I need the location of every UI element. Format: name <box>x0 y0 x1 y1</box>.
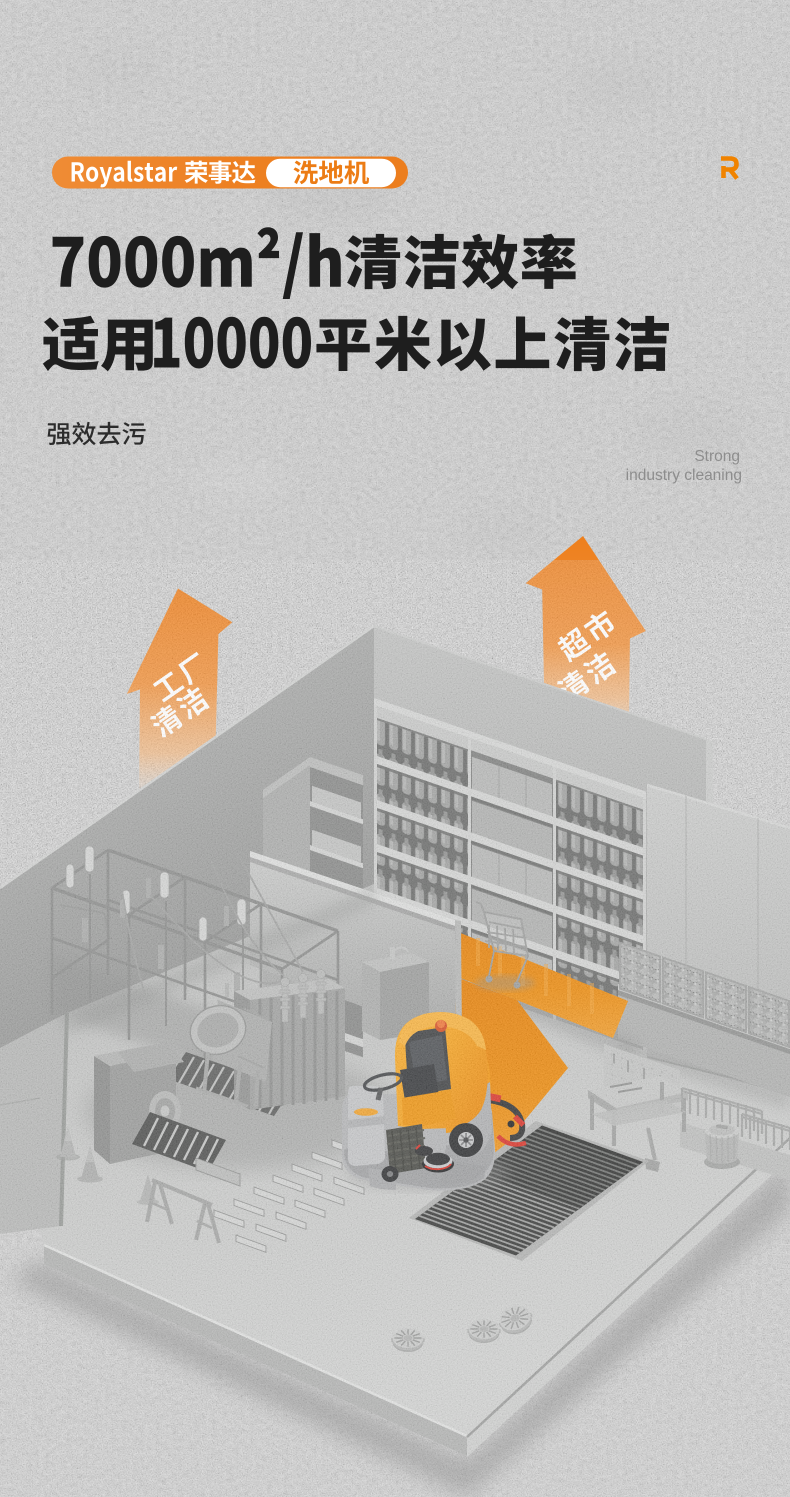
svg-text:industry cleaning: industry cleaning <box>626 467 742 484</box>
svg-text:Strong: Strong <box>694 448 740 465</box>
